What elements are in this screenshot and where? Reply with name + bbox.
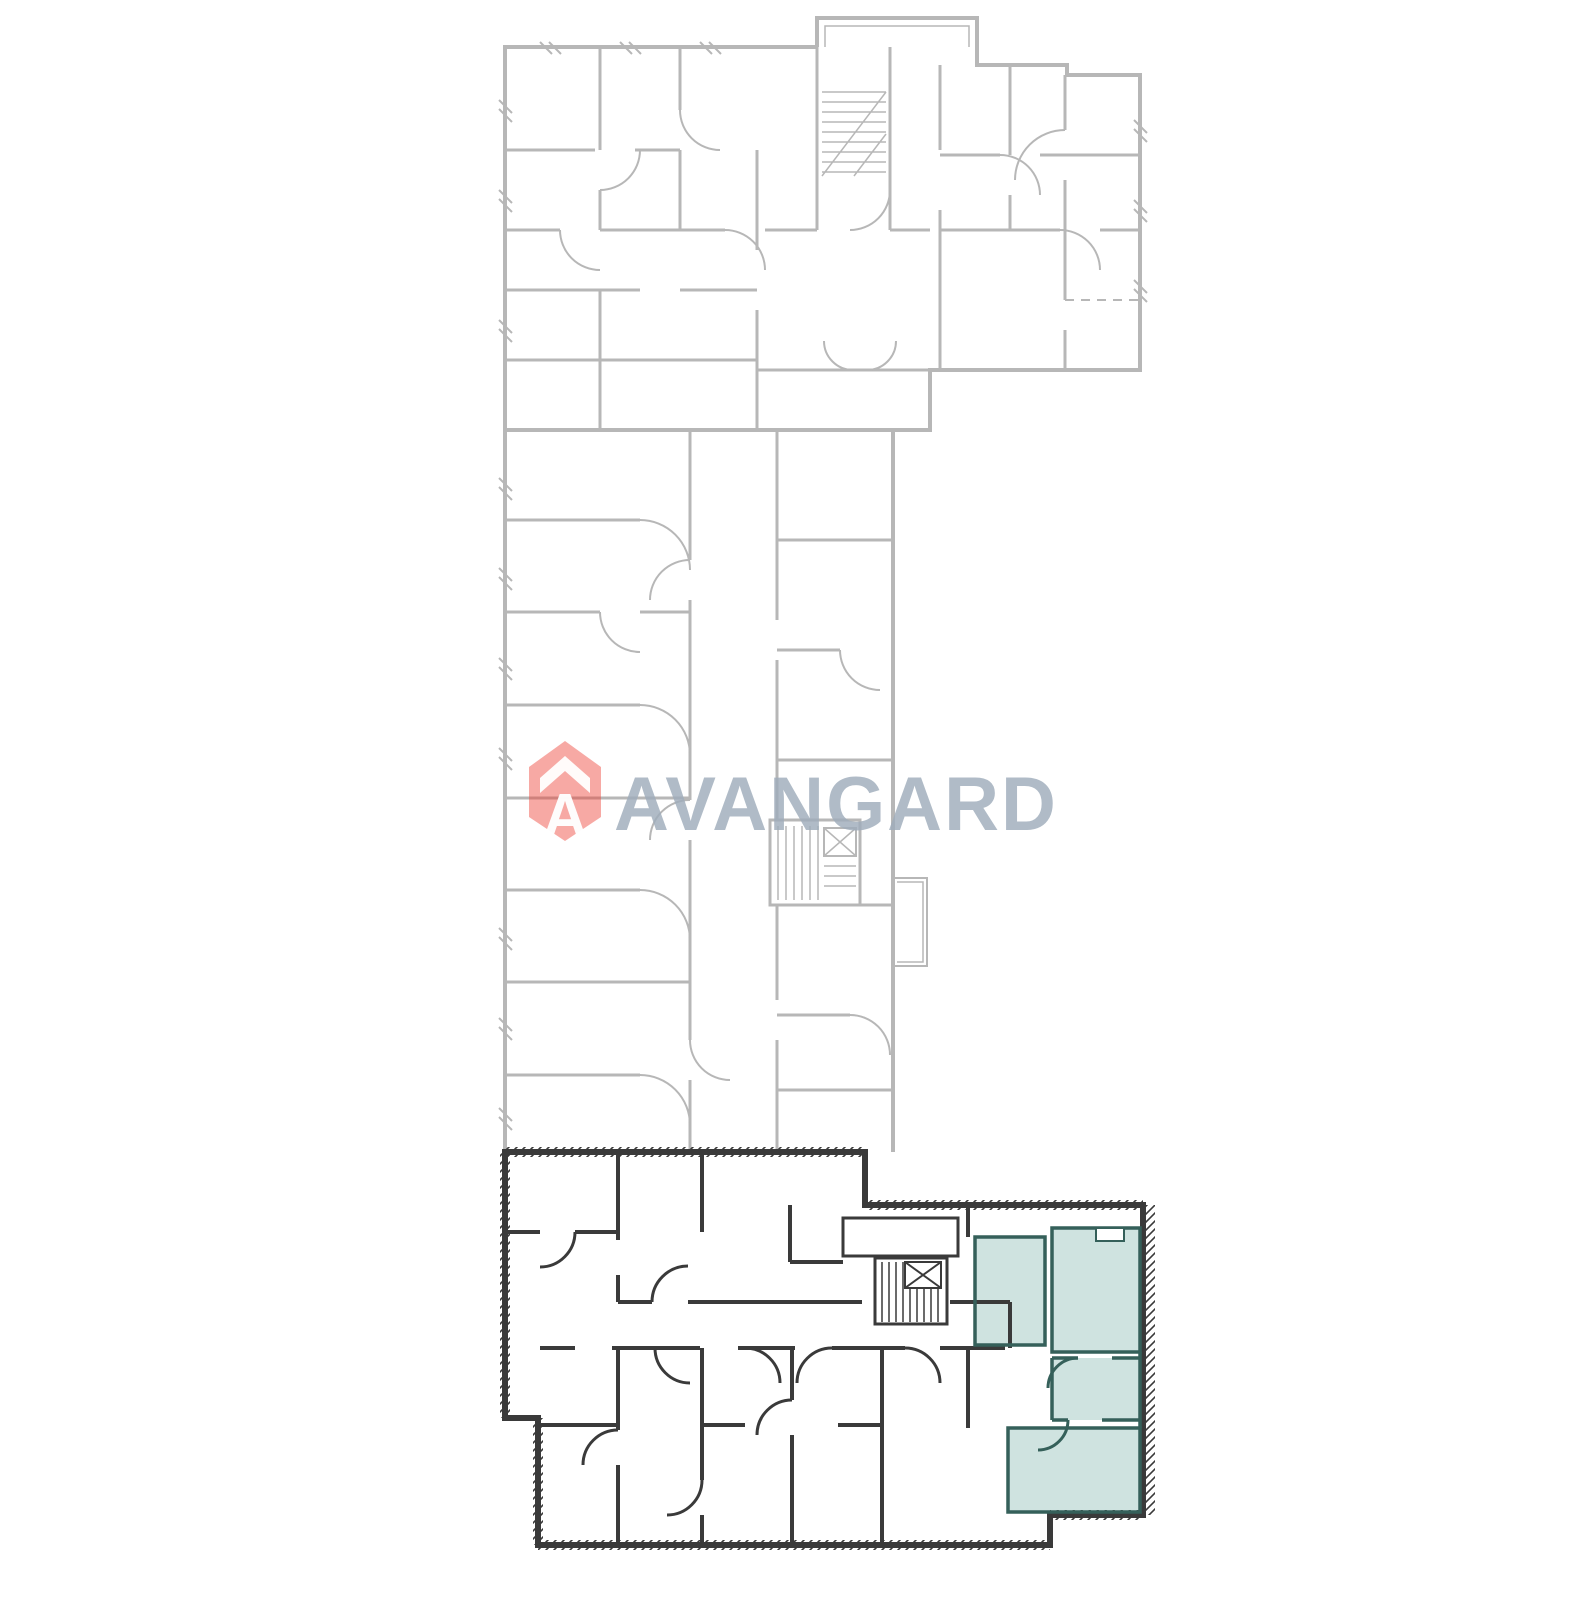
vestibule-room — [843, 1218, 958, 1256]
apartment-room-upper-right[interactable] — [1052, 1228, 1140, 1352]
apartment-hallway[interactable] — [1052, 1358, 1140, 1420]
apartment-room-lower[interactable] — [1008, 1428, 1140, 1512]
brand-text: AVANGARD — [614, 762, 1058, 847]
brand-letter: A — [543, 782, 588, 851]
window-vent-icon — [1096, 1228, 1124, 1241]
floor-plan-canvas: A AVANGARD — [0, 0, 1583, 1600]
floor-plan-page: A AVANGARD — [0, 0, 1583, 1600]
